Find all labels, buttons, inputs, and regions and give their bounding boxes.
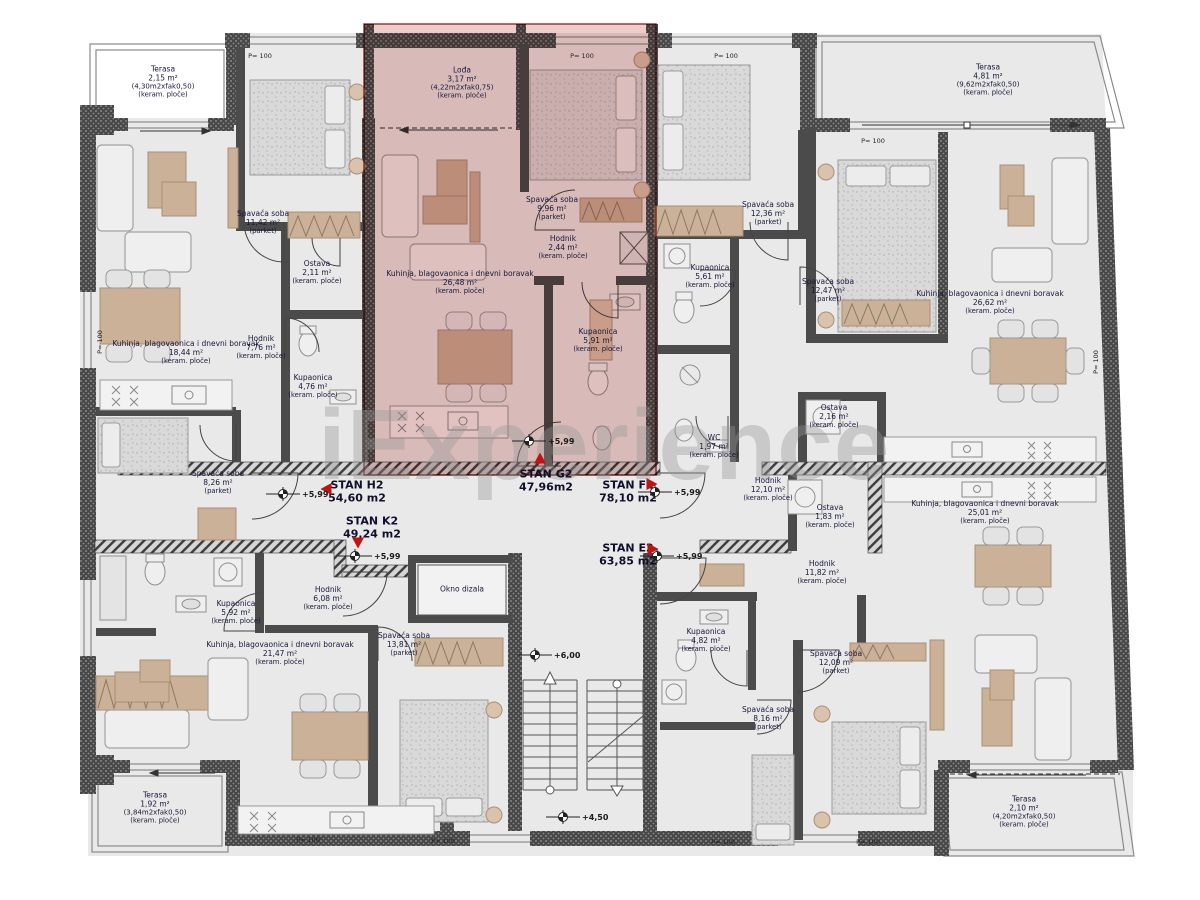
floorplan-drawing (0, 0, 1200, 900)
floorplan-canvas: iExperience Terasa2,15 m²(4,30m2xfak0,50… (0, 0, 1200, 900)
elevator-shaft (418, 560, 520, 618)
highlighted-apartment-overlay[interactable] (364, 24, 656, 475)
